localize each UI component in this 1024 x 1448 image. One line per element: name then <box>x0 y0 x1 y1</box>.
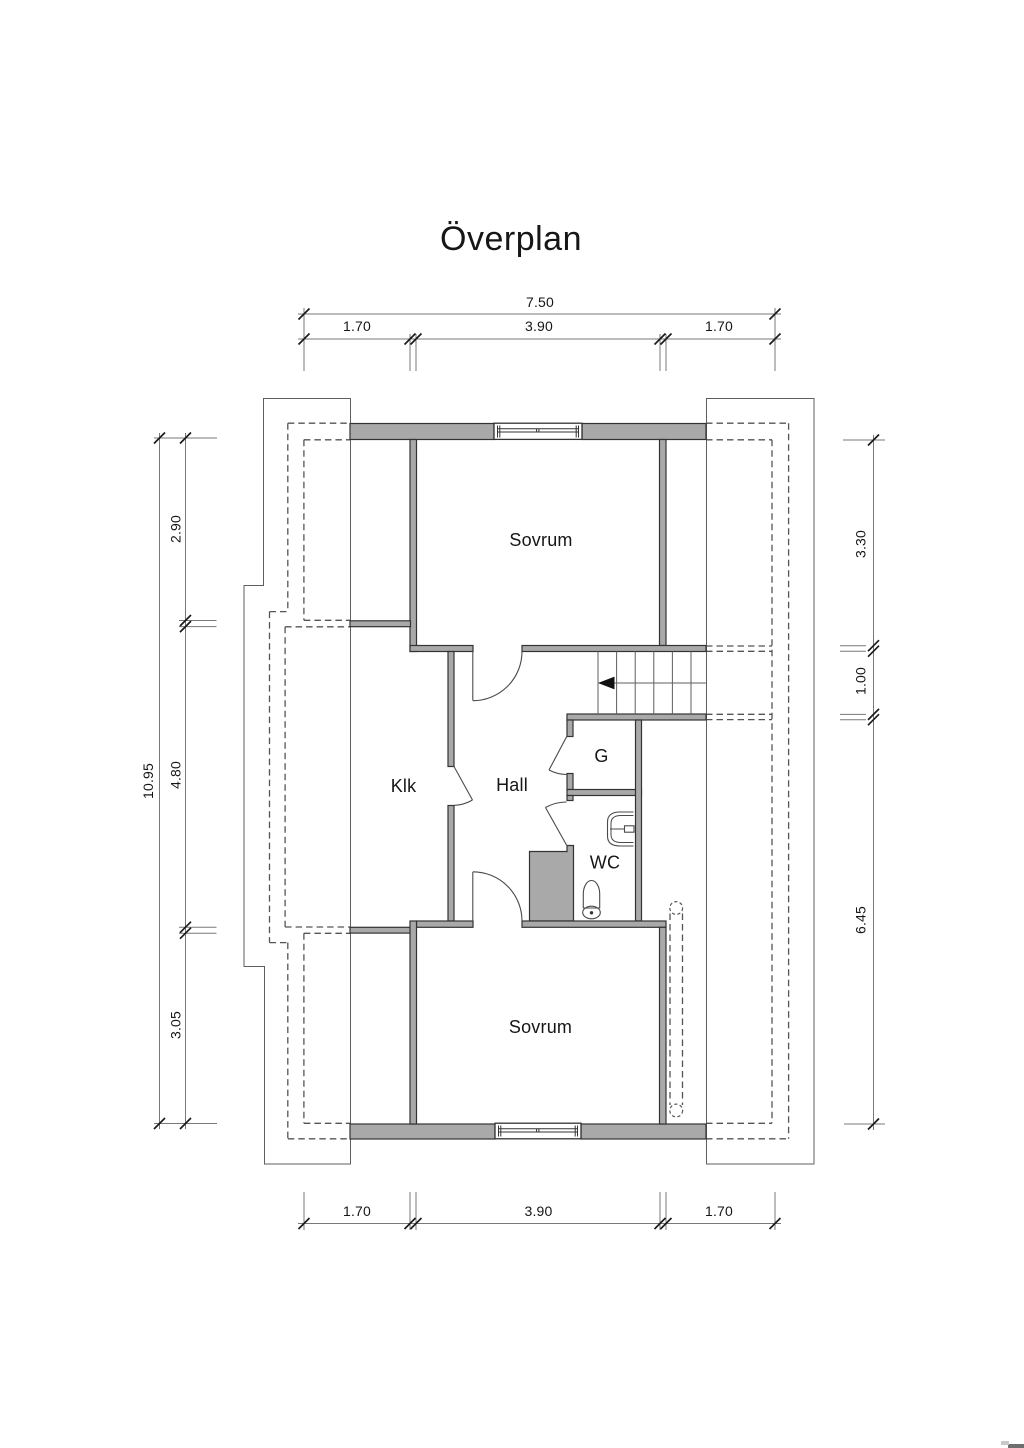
svg-text:Hall: Hall <box>496 775 528 795</box>
svg-text:1.00: 1.00 <box>852 667 868 695</box>
svg-text:Överplan: Överplan <box>440 220 582 258</box>
svg-text:WC: WC <box>590 853 620 873</box>
svg-text:Klk: Klk <box>391 776 417 796</box>
svg-text:6.45: 6.45 <box>852 906 868 934</box>
svg-text:3.90: 3.90 <box>525 318 553 334</box>
svg-text:2.90: 2.90 <box>168 515 184 543</box>
svg-text:1.70: 1.70 <box>705 1203 733 1219</box>
svg-text:3.30: 3.30 <box>852 530 868 558</box>
svg-text:1.70: 1.70 <box>705 318 733 334</box>
svg-text:1.70: 1.70 <box>343 318 371 334</box>
svg-text:4.80: 4.80 <box>168 761 184 789</box>
svg-text:7.50: 7.50 <box>526 294 554 310</box>
svg-text:3.05: 3.05 <box>168 1011 184 1039</box>
svg-text:10.95: 10.95 <box>140 763 156 799</box>
svg-text:Sovrum: Sovrum <box>509 530 572 550</box>
svg-text:Sovrum: Sovrum <box>509 1017 572 1037</box>
svg-text:G: G <box>594 746 608 766</box>
svg-text:1.70: 1.70 <box>343 1203 371 1219</box>
svg-text:3.90: 3.90 <box>524 1203 552 1219</box>
